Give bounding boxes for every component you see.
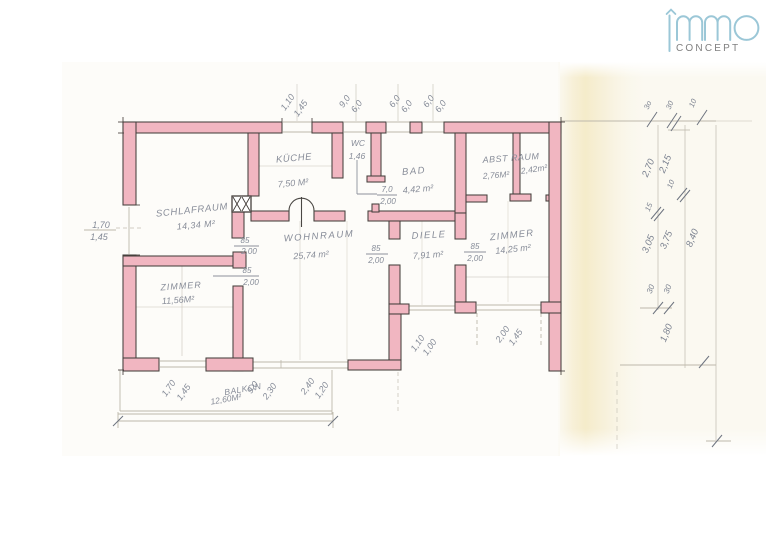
svg-text:1,46: 1,46 <box>349 151 366 161</box>
svg-text:85: 85 <box>241 236 250 245</box>
svg-text:2,76M²: 2,76M² <box>481 169 510 181</box>
svg-text:2,00: 2,00 <box>240 247 257 256</box>
svg-text:85: 85 <box>471 242 480 251</box>
svg-text:2,00: 2,00 <box>242 278 259 287</box>
svg-text:DIELE: DIELE <box>411 229 446 242</box>
svg-text:2,00: 2,00 <box>367 256 384 265</box>
svg-text:85: 85 <box>372 244 381 253</box>
svg-text:85: 85 <box>243 266 252 275</box>
svg-text:CONCEPT: CONCEPT <box>676 43 740 54</box>
svg-text:BAD: BAD <box>402 165 427 178</box>
svg-text:1,45: 1,45 <box>90 232 109 242</box>
svg-text:1,70: 1,70 <box>92 220 110 230</box>
svg-text:WC: WC <box>351 138 366 148</box>
svg-text:2,00: 2,00 <box>379 197 396 206</box>
svg-text:2,00: 2,00 <box>466 254 483 263</box>
svg-text:7,0: 7,0 <box>381 185 393 194</box>
